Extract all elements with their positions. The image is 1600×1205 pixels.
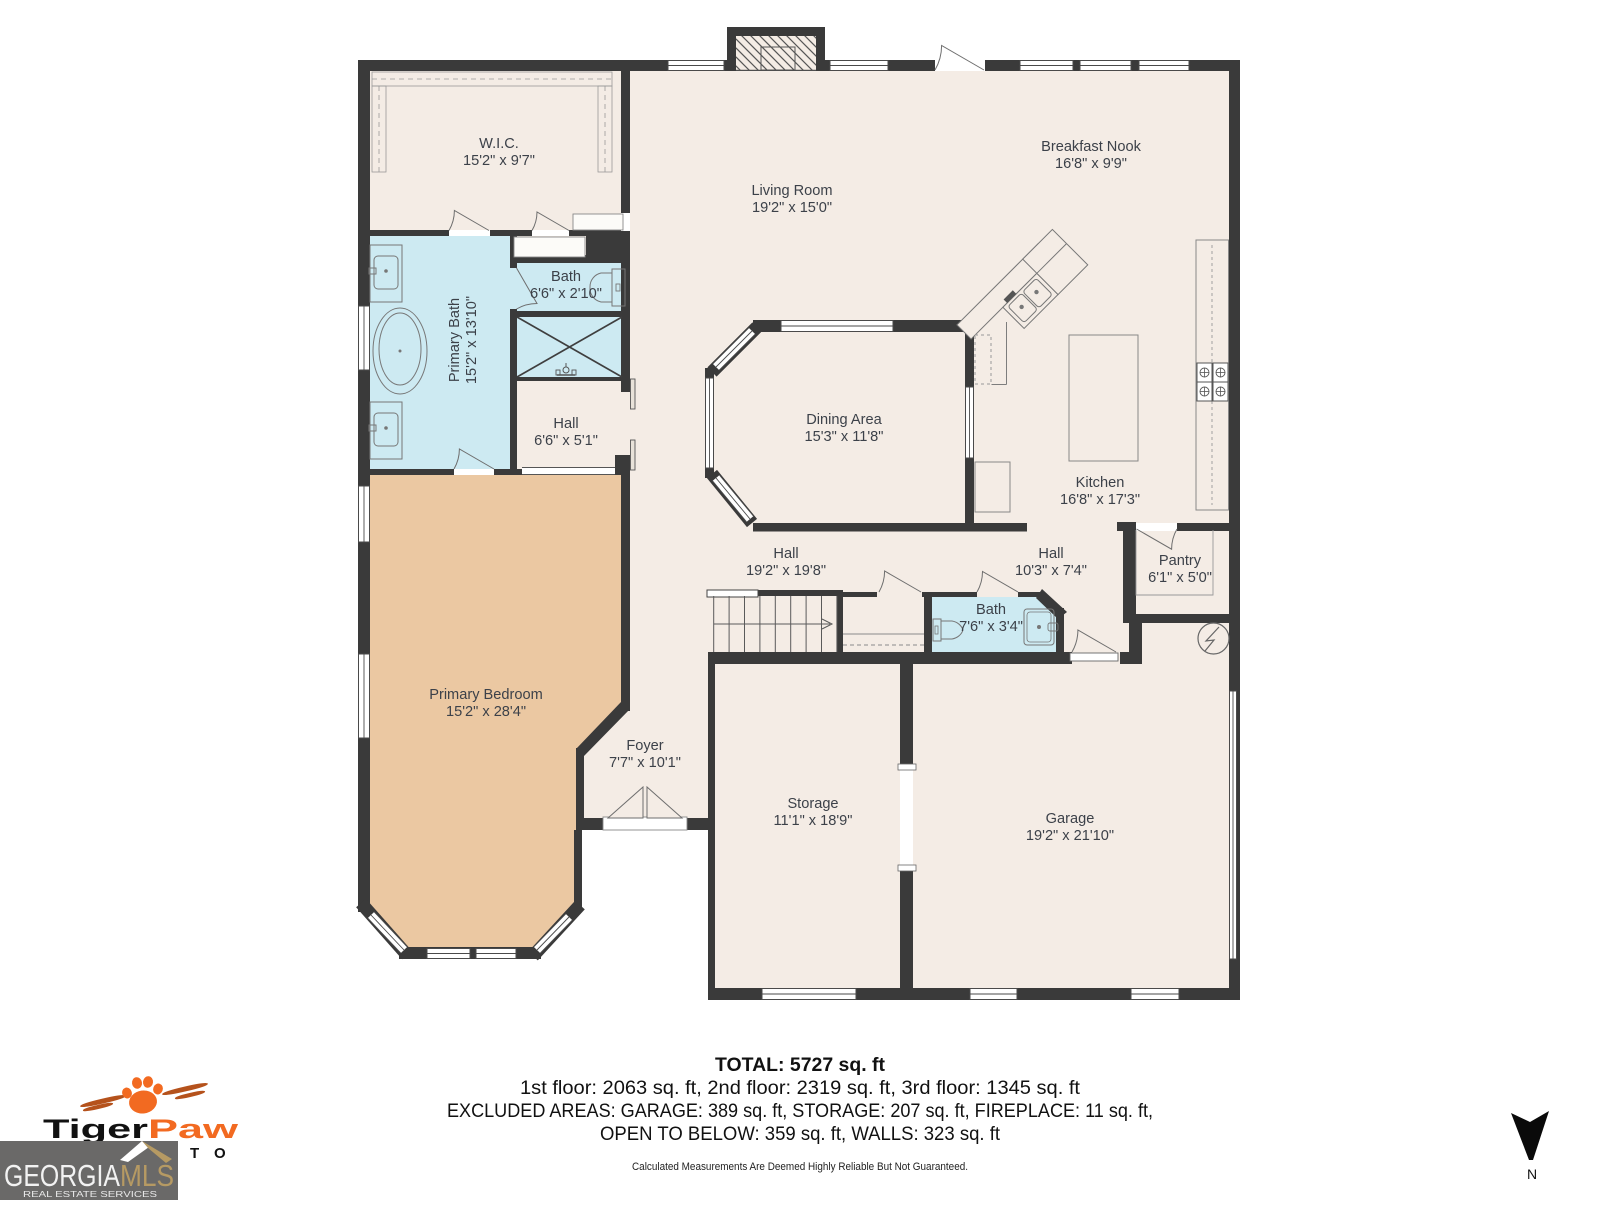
- svg-text:Bath: Bath: [551, 269, 581, 285]
- svg-text:Hall: Hall: [553, 416, 578, 432]
- svg-text:Primary Bath: Primary Bath: [447, 298, 463, 382]
- svg-text:19'2" x 15'0": 19'2" x 15'0": [752, 200, 832, 216]
- svg-text:OPEN TO BELOW: 359 sq. ft, WAL: OPEN TO BELOW: 359 sq. ft, WALLS: 323 sq…: [600, 1123, 1001, 1145]
- svg-text:W.I.C.: W.I.C.: [479, 136, 519, 152]
- svg-text:7'7" x 10'1": 7'7" x 10'1": [609, 755, 681, 771]
- svg-text:Foyer: Foyer: [626, 738, 663, 754]
- svg-text:O: O: [214, 1145, 226, 1162]
- svg-text:15'2" x 28'4": 15'2" x 28'4": [446, 704, 526, 720]
- svg-text:1st floor: 2063 sq. ft, 2nd fl: 1st floor: 2063 sq. ft, 2nd floor: 2319 …: [520, 1077, 1081, 1099]
- svg-text:GEORGIA: GEORGIA: [4, 1158, 120, 1193]
- svg-text:REAL ESTATE SERVICES: REAL ESTATE SERVICES: [23, 1190, 157, 1199]
- svg-text:Dining Area: Dining Area: [806, 412, 882, 428]
- svg-text:Breakfast Nook: Breakfast Nook: [1041, 139, 1141, 155]
- svg-text:10'3" x 7'4": 10'3" x 7'4": [1015, 563, 1087, 579]
- svg-text:TOTAL: 5727 sq. ft: TOTAL: 5727 sq. ft: [715, 1054, 885, 1076]
- svg-text:15'3" x 11'8": 15'3" x 11'8": [805, 429, 884, 445]
- svg-text:19'2" x 21'10": 19'2" x 21'10": [1026, 828, 1114, 844]
- svg-text:16'8" x 9'9": 16'8" x 9'9": [1055, 156, 1127, 172]
- svg-text:15'2" x 13'10": 15'2" x 13'10": [464, 296, 480, 384]
- svg-text:15'2" x 9'7": 15'2" x 9'7": [463, 153, 535, 169]
- svg-text:Kitchen: Kitchen: [1076, 475, 1125, 491]
- svg-text:Bath: Bath: [976, 602, 1006, 618]
- svg-text:16'8" x 17'3": 16'8" x 17'3": [1060, 492, 1140, 508]
- svg-text:6'6" x 2'10": 6'6" x 2'10": [530, 286, 602, 302]
- svg-text:6'1" x 5'0": 6'1" x 5'0": [1148, 570, 1212, 586]
- svg-text:Storage: Storage: [787, 796, 838, 812]
- svg-text:7'6" x 3'4": 7'6" x 3'4": [959, 619, 1023, 635]
- svg-text:19'2" x 19'8": 19'2" x 19'8": [746, 563, 826, 579]
- svg-text:Calculated Measurements Are De: Calculated Measurements Are Deemed Highl…: [632, 1161, 968, 1173]
- svg-text:Living Room: Living Room: [751, 183, 832, 199]
- svg-text:11'1" x 18'9": 11'1" x 18'9": [774, 813, 853, 829]
- svg-text:MLS: MLS: [120, 1158, 174, 1193]
- svg-text:T: T: [190, 1145, 199, 1162]
- svg-text:N: N: [1527, 1166, 1537, 1182]
- svg-text:Paw: Paw: [148, 1114, 240, 1144]
- svg-text:EXCLUDED AREAS: GARAGE: 389 sq: EXCLUDED AREAS: GARAGE: 389 sq. ft, STOR…: [447, 1100, 1153, 1122]
- svg-text:Garage: Garage: [1046, 811, 1095, 827]
- svg-text:6'6" x 5'1": 6'6" x 5'1": [534, 433, 598, 449]
- svg-text:Primary Bedroom: Primary Bedroom: [429, 687, 543, 703]
- svg-text:Pantry: Pantry: [1159, 553, 1202, 569]
- svg-text:Tiger: Tiger: [43, 1114, 149, 1144]
- svg-text:Hall: Hall: [773, 546, 798, 562]
- svg-text:Hall: Hall: [1038, 546, 1063, 562]
